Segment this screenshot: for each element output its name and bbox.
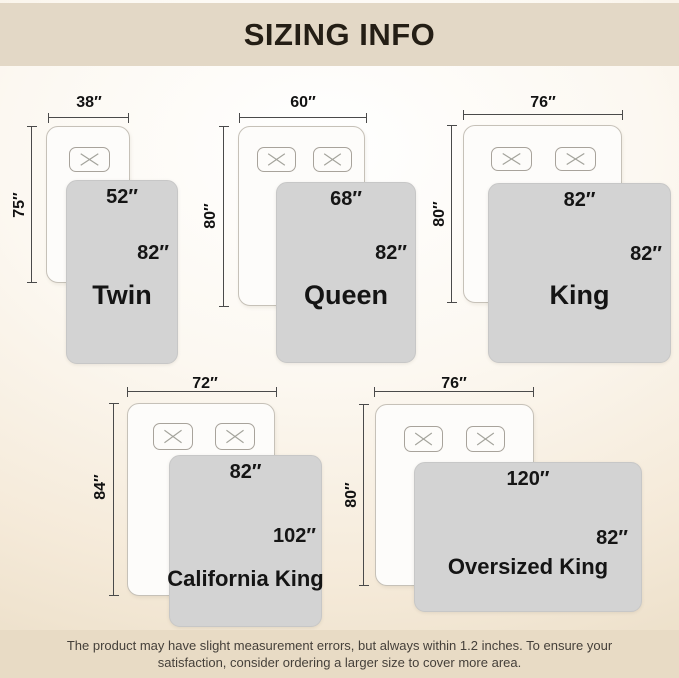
width-measure-line — [463, 114, 623, 115]
length-measure-line — [113, 403, 114, 596]
length-measure-line — [363, 404, 364, 586]
blanket-width-label: 82″ — [230, 462, 262, 482]
size-name-label: Twin — [67, 282, 177, 309]
bed-width-label: 76″ — [530, 95, 555, 111]
bed-width-label: 38″ — [76, 95, 101, 111]
title-banner: SIZING INFO — [0, 3, 679, 66]
bed-width-label: 76″ — [441, 376, 466, 392]
pillow — [404, 426, 443, 452]
bed-width-label: 60″ — [290, 95, 315, 111]
length-measure-line — [31, 126, 32, 283]
size-panel-california-king: 72″ 84″ 82″ 102″ California King — [93, 375, 328, 633]
bed-length-label: 80″ — [432, 201, 448, 226]
pillow — [153, 423, 193, 450]
blanket-length-label: 82″ — [596, 528, 628, 548]
blanket-length-label: 102″ — [273, 526, 316, 546]
blanket-length-label: 82″ — [630, 244, 662, 264]
blanket: 82″ 102″ California King — [169, 455, 322, 627]
size-name-label: Queen — [277, 282, 415, 309]
width-measure-line — [374, 391, 534, 392]
length-measure-line — [451, 125, 452, 303]
pillow — [466, 426, 505, 452]
blanket: 82″ 82″ King — [488, 183, 671, 363]
size-name-label: Oversized King — [433, 554, 623, 580]
blanket: 52″ 82″ Twin — [66, 180, 178, 364]
blanket: 120″ 82″ Oversized King — [414, 462, 642, 612]
disclaimer-line-2: satisfaction, consider ordering a larger… — [158, 654, 521, 671]
width-measure-line — [239, 117, 367, 118]
pillow — [215, 423, 255, 450]
width-measure-line — [48, 117, 129, 118]
page-title: SIZING INFO — [244, 17, 436, 53]
pillow — [491, 147, 532, 171]
pillow-x-icon — [216, 424, 254, 449]
pillow — [257, 147, 296, 172]
pillow-x-icon — [467, 427, 504, 451]
pillow — [313, 147, 352, 172]
blanket-length-label: 82″ — [137, 243, 169, 263]
size-panel-twin: 38″ 75″ 52″ 82″ Twin — [10, 95, 185, 373]
bed-length-label: 84″ — [93, 474, 109, 499]
bed-length-label: 75″ — [12, 192, 28, 217]
disclaimer-line-1: The product may have slight measurement … — [67, 637, 612, 654]
size-panel-oversized-king: 76″ 80″ 120″ 82″ Oversized King — [344, 375, 649, 633]
bed-length-label: 80″ — [203, 203, 219, 228]
pillow-x-icon — [154, 424, 192, 449]
pillow — [69, 147, 110, 172]
disclaimer-bar: The product may have slight measurement … — [0, 630, 679, 678]
blanket-width-label: 52″ — [106, 187, 138, 207]
length-measure-line — [223, 126, 224, 307]
blanket-width-label: 68″ — [330, 189, 362, 209]
bed-width-label: 72″ — [192, 376, 217, 392]
width-measure-line — [127, 391, 277, 392]
size-name-label: King — [489, 282, 670, 309]
blanket: 68″ 82″ Queen — [276, 182, 416, 363]
blanket-width-label: 120″ — [507, 469, 550, 489]
pillow-x-icon — [70, 148, 109, 171]
pillow-x-icon — [314, 148, 351, 171]
pillow-x-icon — [492, 148, 531, 170]
size-name-label: California King — [166, 566, 326, 592]
pillow-x-icon — [405, 427, 442, 451]
size-panel-king: 76″ 80″ 82″ 82″ King — [432, 95, 677, 373]
pillow-x-icon — [258, 148, 295, 171]
blanket-length-label: 82″ — [375, 243, 407, 263]
bed-length-label: 80″ — [344, 482, 360, 507]
pillow — [555, 147, 596, 171]
blanket-width-label: 82″ — [564, 190, 596, 210]
size-panel-queen: 60″ 80″ 68″ 82″ Queen — [203, 95, 423, 373]
pillow-x-icon — [556, 148, 595, 170]
